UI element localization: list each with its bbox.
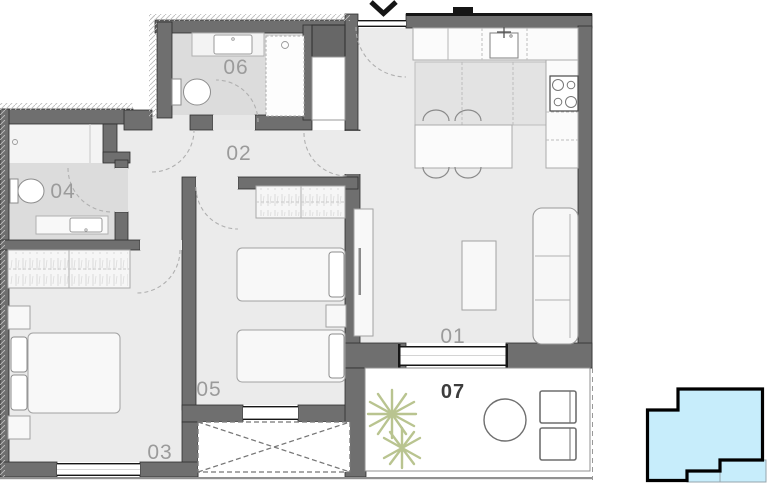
wall-03-bottom-a xyxy=(0,462,57,477)
shower-icon xyxy=(266,36,304,116)
floor-plan: 01 02 03 04 05 06 07 xyxy=(0,0,767,483)
wall-corridor-top xyxy=(124,110,152,130)
room-label-05: 05 xyxy=(196,378,221,401)
shaft xyxy=(312,25,345,57)
bedroom-03-window xyxy=(57,463,140,476)
pillow xyxy=(329,334,344,378)
unit-locator-minimap xyxy=(648,389,767,482)
opening-hall-living xyxy=(344,131,361,174)
kitchen-island xyxy=(415,62,548,125)
wardrobe-03 xyxy=(8,250,130,288)
coffee-table xyxy=(462,241,496,310)
wall-left-06 xyxy=(157,22,172,118)
opening-05 xyxy=(196,177,238,189)
wall-living-bottom-left xyxy=(345,343,406,368)
wall-top-tab xyxy=(453,7,473,15)
nightstand xyxy=(326,305,346,327)
floor-plan-page: 01 02 03 04 05 06 07 xyxy=(0,0,767,483)
pillow xyxy=(11,337,27,372)
balcony xyxy=(365,368,590,471)
balcony-chair xyxy=(540,428,576,460)
double-bed xyxy=(28,333,120,413)
wall-living-bottom-right xyxy=(506,343,592,368)
wall-top-right xyxy=(406,14,592,28)
wall-entry-column xyxy=(345,14,358,130)
void-crossed-area xyxy=(198,422,350,472)
balcony-chair xyxy=(540,391,576,423)
pillow xyxy=(329,252,344,297)
utility-room-floor xyxy=(8,124,103,163)
room-label-06: 06 xyxy=(223,56,248,79)
opening-04 xyxy=(115,168,128,212)
hatch-left-outer xyxy=(0,109,5,477)
entry-closet xyxy=(312,57,345,120)
wall-05-bottom-b xyxy=(298,405,352,422)
room-label-01: 01 xyxy=(440,325,465,348)
wall-right xyxy=(578,26,592,368)
room-label-04: 04 xyxy=(50,180,75,203)
wall-03-bottom-b xyxy=(140,462,198,477)
washbasin-icon xyxy=(70,218,102,232)
tv-icon xyxy=(359,248,362,295)
sofa xyxy=(533,208,578,344)
opening-06 xyxy=(213,115,255,130)
wall-top-04 xyxy=(0,109,133,124)
tv-cabinet xyxy=(354,209,373,336)
adjacent-unit-shape xyxy=(687,471,720,482)
room-label-02: 02 xyxy=(226,142,251,165)
balcony-table xyxy=(484,399,526,441)
ground-line xyxy=(0,477,592,479)
adjacent-unit-shape xyxy=(720,460,766,482)
wall-05-bottom-a xyxy=(182,405,243,422)
wardrobe-05 xyxy=(256,186,345,218)
opening-03 xyxy=(140,240,182,250)
wall-03-top xyxy=(0,240,140,250)
pillow xyxy=(11,375,27,410)
entry-chevron-icon xyxy=(371,2,396,14)
wall-04-right-a xyxy=(115,160,128,168)
hallway-02-floor xyxy=(196,130,358,177)
wall-top-edge-line xyxy=(406,13,592,16)
dining-table xyxy=(415,125,512,168)
entry-threshold xyxy=(358,20,406,27)
nightstand xyxy=(8,306,30,329)
bedroom-05-window xyxy=(243,406,298,420)
hatch-top-06 xyxy=(150,14,350,21)
room-label-03: 03 xyxy=(147,441,172,464)
nightstand xyxy=(8,416,30,439)
hatch-left-06 xyxy=(149,14,157,118)
wall-divider-03-05 xyxy=(182,177,196,410)
room-label-07: 07 xyxy=(441,381,465,403)
stove-icon xyxy=(550,76,578,111)
toilet-icon xyxy=(172,79,211,105)
kitchen xyxy=(413,27,578,178)
wall-06-bottom-a xyxy=(190,115,213,130)
toilet-icon xyxy=(10,179,44,203)
hatch-top-04 xyxy=(0,103,133,110)
